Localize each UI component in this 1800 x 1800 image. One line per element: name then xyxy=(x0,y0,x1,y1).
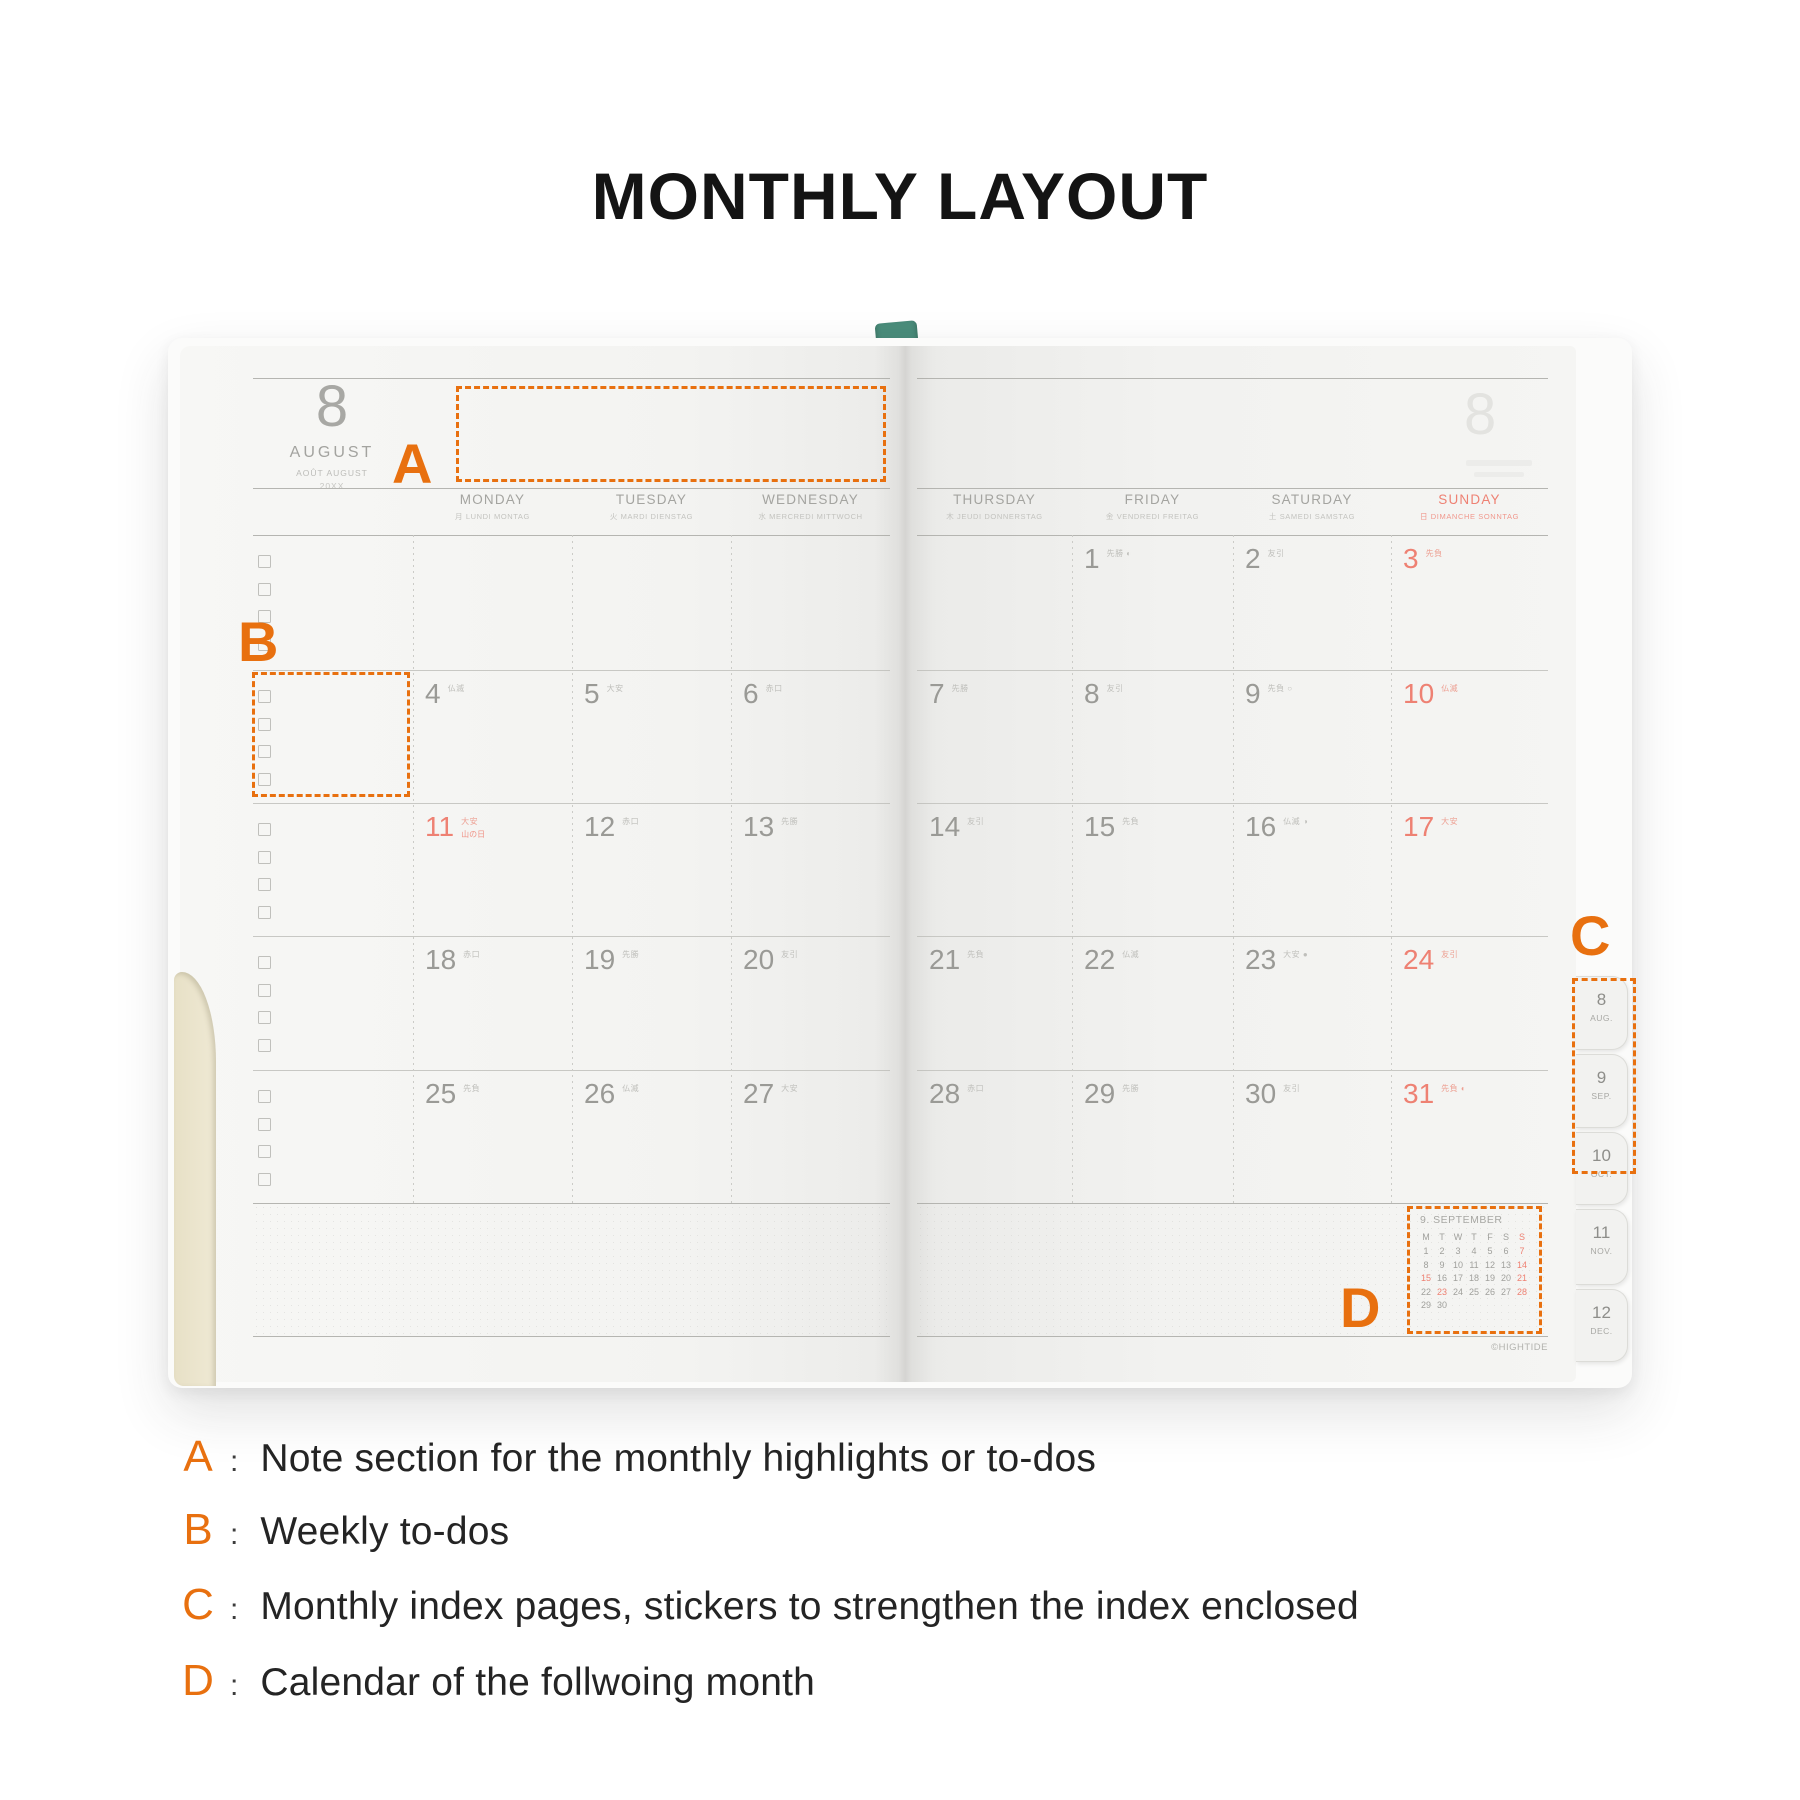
page-title: MONTHLY LAYOUT xyxy=(0,158,1800,234)
day-of-week-name: MONDAY xyxy=(418,492,568,507)
day-rokuyo-note: 仏滅 xyxy=(1122,949,1139,960)
day-number: 27 xyxy=(743,1080,774,1108)
day-meta: 仏滅 xyxy=(1441,683,1458,694)
day-rokuyo-note: 大安 ● xyxy=(1283,949,1308,960)
day-cell: 13先勝 xyxy=(743,813,798,841)
legend-item-c: C : Monthly index pages, stickers to str… xyxy=(176,1580,1359,1630)
legend-text: Calendar of the follwoing month xyxy=(260,1661,815,1705)
legend-item-a: A : Note section for the monthly highlig… xyxy=(176,1432,1096,1482)
legend-text: Note section for the monthly highlights … xyxy=(260,1437,1096,1481)
legend-text: Weekly to-dos xyxy=(260,1510,509,1554)
day-of-week-header: SUNDAY日 DIMANCHE SONNTAG xyxy=(1395,492,1545,522)
day-number: 1 xyxy=(1084,545,1100,573)
day-meta: 先勝 xyxy=(781,816,798,827)
day-number: 22 xyxy=(1084,946,1115,974)
todo-checkbox xyxy=(258,583,271,596)
day-cell: 6赤口 xyxy=(743,680,783,708)
day-cell: 20友引 xyxy=(743,946,798,974)
todo-checkbox xyxy=(258,555,271,568)
legend-item-d: D : Calendar of the follwoing month xyxy=(176,1656,815,1706)
day-cell: 11大安山の日 xyxy=(425,813,485,841)
day-meta: 大安 ● xyxy=(1283,949,1308,960)
grid-line xyxy=(917,1336,1548,1337)
day-number: 26 xyxy=(584,1080,615,1108)
legend-text: Monthly index pages, stickers to strengt… xyxy=(260,1585,1359,1629)
day-cell: 12赤口 xyxy=(584,813,639,841)
day-number: 16 xyxy=(1245,813,1276,841)
day-rokuyo-note: 友引 xyxy=(1107,683,1124,694)
day-rokuyo-note: 赤口 xyxy=(766,683,783,694)
day-number: 24 xyxy=(1403,946,1434,974)
day-rokuyo-note: 友引 xyxy=(1441,949,1458,960)
day-meta: 先負 ○ xyxy=(1268,683,1293,694)
day-cell: 26仏滅 xyxy=(584,1080,639,1108)
day-number: 14 xyxy=(929,813,960,841)
day-of-week-sublabel: 金 VENDREDI FREITAG xyxy=(1078,511,1228,522)
todo-checkbox xyxy=(258,906,271,919)
day-cell: 17大安 xyxy=(1403,813,1458,841)
day-of-week-header: TUESDAY火 MARDI DIENSTAG xyxy=(577,492,727,522)
notes-dot-grid xyxy=(253,1204,890,1335)
day-rokuyo-note: 先負 xyxy=(463,1083,480,1094)
day-of-week-sublabel: 火 MARDI DIENSTAG xyxy=(577,511,727,522)
day-number: 18 xyxy=(425,946,456,974)
highlight-box-c-index-tabs xyxy=(1572,978,1636,1174)
todo-checkbox xyxy=(258,984,271,997)
day-rokuyo-note: 大安 xyxy=(461,816,485,827)
day-rokuyo-note: 赤口 xyxy=(622,816,639,827)
day-number: 19 xyxy=(584,946,615,974)
day-of-week-header: WEDNESDAY水 MERCREDI MITTWOCH xyxy=(736,492,886,522)
grid-column-divider xyxy=(572,535,573,1203)
day-rokuyo-note: 先負 xyxy=(967,949,984,960)
todo-checkbox xyxy=(258,823,271,836)
day-meta: 先勝 xyxy=(622,949,639,960)
todo-checkbox xyxy=(258,956,271,969)
day-of-week-sublabel: 日 DIMANCHE SONNTAG xyxy=(1395,511,1545,522)
month-header: 8 AUGUST AOÛT AUGUST 20XX xyxy=(252,378,412,491)
day-meta: 友引 xyxy=(1283,1083,1300,1094)
month-year: 20XX xyxy=(252,481,412,491)
day-of-week-sublabel: 土 SAMEDI SAMSTAG xyxy=(1237,511,1387,522)
highlight-box-d-mini-calendar xyxy=(1407,1206,1542,1334)
day-cell: 2友引 xyxy=(1245,545,1285,573)
day-rokuyo-note: 先勝 xyxy=(781,816,798,827)
day-meta: 大安 xyxy=(1441,816,1458,827)
day-number: 31 xyxy=(1403,1080,1434,1108)
ghost-month-number: 8 xyxy=(1464,386,1496,444)
legend-letter: D xyxy=(176,1656,220,1706)
day-cell: 16仏滅 ◑ xyxy=(1245,813,1308,841)
day-meta: 先負 xyxy=(1426,548,1443,559)
day-cell: 4仏滅 xyxy=(425,680,465,708)
day-number: 23 xyxy=(1245,946,1276,974)
month-index-tab: 11NOV. xyxy=(1576,1209,1628,1285)
tab-month-number: 11 xyxy=(1576,1223,1627,1243)
product-page: MONTHLY LAYOUT 8 AUGUST AOÛT AUGUST 20XX… xyxy=(0,0,1800,1800)
day-rokuyo-note: 仏滅 xyxy=(1441,683,1458,694)
day-rokuyo-note: 友引 xyxy=(1283,1083,1300,1094)
legend-separator: : xyxy=(230,1669,238,1703)
todo-checkbox xyxy=(258,1173,271,1186)
day-cell: 5大安 xyxy=(584,680,624,708)
day-rokuyo-note: 友引 xyxy=(1268,548,1285,559)
day-meta: 友引 xyxy=(1441,949,1458,960)
day-rokuyo-note: 大安 xyxy=(607,683,624,694)
day-number: 11 xyxy=(425,813,454,841)
overlay-letter-d: D xyxy=(1340,1280,1380,1336)
day-meta: 赤口 xyxy=(967,1083,984,1094)
day-cell: 21先負 xyxy=(929,946,984,974)
grid-line xyxy=(253,1203,890,1204)
day-number: 13 xyxy=(743,813,774,841)
day-of-week-sublabel: 木 JEUDI DONNERSTAG xyxy=(920,511,1070,522)
todo-checkbox xyxy=(258,851,271,864)
day-cell: 15先負 xyxy=(1084,813,1139,841)
ghost-text-bar xyxy=(1474,472,1524,477)
day-meta: 友引 xyxy=(781,949,798,960)
overlay-letter-b: B xyxy=(238,614,278,670)
grid-column-divider xyxy=(731,535,732,1203)
day-number: 15 xyxy=(1084,813,1115,841)
day-number: 9 xyxy=(1245,680,1261,708)
day-meta: 友引 xyxy=(967,816,984,827)
day-number: 8 xyxy=(1084,680,1100,708)
day-cell: 22仏滅 xyxy=(1084,946,1139,974)
legend-separator: : xyxy=(230,1593,238,1627)
day-of-week-name: FRIDAY xyxy=(1078,492,1228,507)
day-rokuyo-note: 先勝 xyxy=(622,949,639,960)
day-number: 30 xyxy=(1245,1080,1276,1108)
tab-month-label: DEC. xyxy=(1576,1326,1627,1336)
holiday-label: 山の日 xyxy=(461,829,485,840)
day-meta: 先勝 xyxy=(952,683,969,694)
day-number: 28 xyxy=(929,1080,960,1108)
day-rokuyo-note: 先負 xyxy=(1426,548,1443,559)
planner-photo: 8 AUGUST AOÛT AUGUST 20XX 8 9. SEPTEMBER… xyxy=(178,336,1648,1400)
day-of-week-name: THURSDAY xyxy=(920,492,1070,507)
day-rokuyo-note: 先勝 xyxy=(952,683,969,694)
legend-separator: : xyxy=(230,1518,238,1552)
day-rokuyo-note: 先負 ◐ xyxy=(1441,1083,1466,1094)
day-rokuyo-note: 仏滅 xyxy=(622,1083,639,1094)
day-meta: 仏滅 ◑ xyxy=(1283,816,1308,827)
day-rokuyo-note: 仏滅 ◑ xyxy=(1283,816,1308,827)
brand-credit: ©HIGHTIDE xyxy=(1418,1342,1548,1353)
day-cell: 29先勝 xyxy=(1084,1080,1139,1108)
day-meta: 仏滅 xyxy=(1122,949,1139,960)
day-number: 5 xyxy=(584,680,600,708)
ghost-text-bar xyxy=(1466,460,1532,466)
day-meta: 先負 xyxy=(967,949,984,960)
day-cell: 9先負 ○ xyxy=(1245,680,1293,708)
day-meta: 仏滅 xyxy=(622,1083,639,1094)
day-number: 21 xyxy=(929,946,960,974)
month-index-tab: 12DEC. xyxy=(1576,1289,1628,1362)
day-number: 10 xyxy=(1403,680,1434,708)
todo-checkbox xyxy=(258,878,271,891)
day-rokuyo-note: 先負 xyxy=(1122,816,1139,827)
day-cell: 3先負 xyxy=(1403,545,1443,573)
day-number: 29 xyxy=(1084,1080,1115,1108)
day-rokuyo-note: 赤口 xyxy=(463,949,480,960)
grid-column-divider xyxy=(413,535,414,1203)
day-of-week-header: MONDAY月 LUNDI MONTAG xyxy=(418,492,568,522)
day-of-week-header: FRIDAY金 VENDREDI FREITAG xyxy=(1078,492,1228,522)
day-cell: 14友引 xyxy=(929,813,984,841)
grid-column-divider xyxy=(1233,535,1234,1203)
day-cell: 10仏滅 xyxy=(1403,680,1458,708)
day-cell: 31先負 ◐ xyxy=(1403,1080,1466,1108)
grid-line xyxy=(917,1203,1548,1204)
day-of-week-name: WEDNESDAY xyxy=(736,492,886,507)
day-number: 6 xyxy=(743,680,759,708)
day-cell: 28赤口 xyxy=(929,1080,984,1108)
grid-column-divider xyxy=(1072,535,1073,1203)
day-number: 20 xyxy=(743,946,774,974)
day-of-week-header: SATURDAY土 SAMEDI SAMSTAG xyxy=(1237,492,1387,522)
day-rokuyo-note: 先勝 ◐ xyxy=(1107,548,1132,559)
day-of-week-name: SUNDAY xyxy=(1395,492,1545,507)
day-meta: 赤口 xyxy=(463,949,480,960)
day-meta: 赤口 xyxy=(766,683,783,694)
overlay-letter-a: A xyxy=(392,436,432,492)
legend-letter: C xyxy=(176,1580,220,1630)
day-rokuyo-note: 赤口 xyxy=(967,1083,984,1094)
day-meta: 大安 xyxy=(607,683,624,694)
day-cell: 1先勝 ◐ xyxy=(1084,545,1132,573)
day-meta: 赤口 xyxy=(622,816,639,827)
day-number: 25 xyxy=(425,1080,456,1108)
day-rokuyo-note: 友引 xyxy=(781,949,798,960)
highlight-box-a-notes xyxy=(456,386,886,482)
grid-line xyxy=(917,378,1548,379)
day-rokuyo-note: 仏滅 xyxy=(448,683,465,694)
day-number: 2 xyxy=(1245,545,1261,573)
legend-letter: A xyxy=(176,1432,220,1482)
legend-separator: : xyxy=(230,1445,238,1479)
todo-checkbox xyxy=(258,1090,271,1103)
legend-letter: B xyxy=(176,1505,220,1555)
day-rokuyo-note: 大安 xyxy=(1441,816,1458,827)
day-cell: 7先勝 xyxy=(929,680,969,708)
day-meta: 仏滅 xyxy=(448,683,465,694)
month-name: AUGUST xyxy=(252,444,412,462)
day-rokuyo-note: 友引 xyxy=(967,816,984,827)
month-number: 8 xyxy=(252,378,412,436)
day-meta: 先負 xyxy=(1122,816,1139,827)
day-number: 17 xyxy=(1403,813,1434,841)
day-meta: 先勝 ◐ xyxy=(1107,548,1132,559)
day-meta: 友引 xyxy=(1268,548,1285,559)
todo-checkbox xyxy=(258,1145,271,1158)
todo-checkbox xyxy=(258,1118,271,1131)
day-of-week-header: THURSDAY木 JEUDI DONNERSTAG xyxy=(920,492,1070,522)
day-number: 4 xyxy=(425,680,441,708)
day-meta: 先負 xyxy=(463,1083,480,1094)
grid-line xyxy=(253,488,890,489)
grid-line xyxy=(917,488,1548,489)
day-cell: 23大安 ● xyxy=(1245,946,1308,974)
day-cell: 8友引 xyxy=(1084,680,1124,708)
day-of-week-sublabel: 月 LUNDI MONTAG xyxy=(418,511,568,522)
day-rokuyo-note: 大安 xyxy=(781,1083,798,1094)
tab-month-number: 12 xyxy=(1576,1303,1627,1323)
todo-checkbox xyxy=(258,1039,271,1052)
day-meta: 大安 xyxy=(781,1083,798,1094)
day-cell: 24友引 xyxy=(1403,946,1458,974)
day-cell: 25先負 xyxy=(425,1080,480,1108)
overlay-letter-c: C xyxy=(1570,908,1610,964)
day-of-week-name: SATURDAY xyxy=(1237,492,1387,507)
underlay-page-edge xyxy=(174,972,216,1386)
tab-month-label: NOV. xyxy=(1576,1246,1627,1256)
day-cell: 18赤口 xyxy=(425,946,480,974)
grid-column-divider xyxy=(1391,535,1392,1203)
day-rokuyo-note: 先負 ○ xyxy=(1268,683,1293,694)
day-meta: 友引 xyxy=(1107,683,1124,694)
day-meta: 先勝 xyxy=(1122,1083,1139,1094)
day-number: 12 xyxy=(584,813,615,841)
todo-checkbox xyxy=(258,1011,271,1024)
day-cell: 27大安 xyxy=(743,1080,798,1108)
legend-item-b: B : Weekly to-dos xyxy=(176,1505,509,1555)
day-cell: 19先勝 xyxy=(584,946,639,974)
grid-line xyxy=(253,378,890,379)
day-number: 7 xyxy=(929,680,945,708)
grid-line xyxy=(253,1336,890,1337)
day-rokuyo-note: 先勝 xyxy=(1122,1083,1139,1094)
day-of-week-sublabel: 水 MERCREDI MITTWOCH xyxy=(736,511,886,522)
day-meta: 先負 ◐ xyxy=(1441,1083,1466,1094)
day-cell: 30友引 xyxy=(1245,1080,1300,1108)
month-subtitle: AOÛT AUGUST xyxy=(252,468,412,478)
highlight-box-b-weekly-todos xyxy=(252,672,410,797)
day-of-week-name: TUESDAY xyxy=(577,492,727,507)
day-meta: 大安山の日 xyxy=(461,816,485,840)
day-number: 3 xyxy=(1403,545,1419,573)
